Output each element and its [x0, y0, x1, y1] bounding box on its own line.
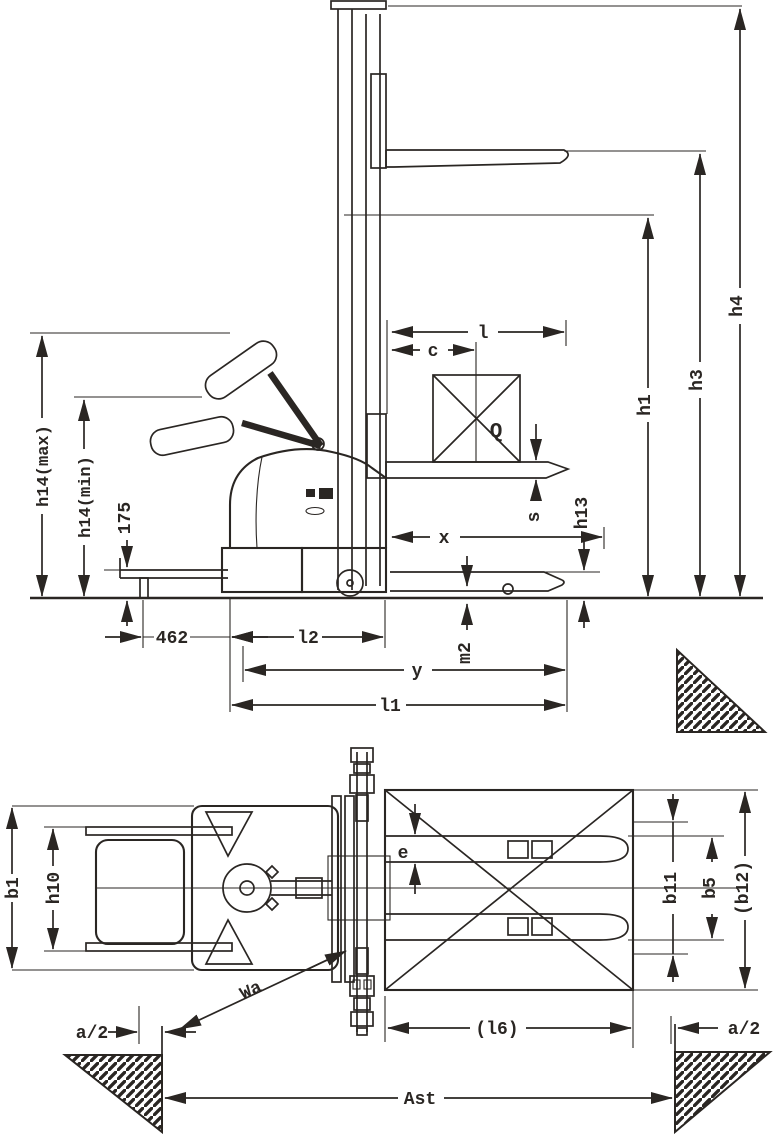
dim-label-ast: Ast	[404, 1090, 436, 1110]
side-view: Q	[30, 1, 765, 732]
fork-raised	[371, 74, 568, 168]
dim-label-h10: h10	[45, 872, 65, 904]
tiller-driving	[148, 415, 321, 458]
dim-label-b12: (b12)	[734, 861, 754, 915]
dim-label-l2: l2	[297, 629, 319, 649]
dim-label-c: c	[428, 342, 439, 362]
operator-platform	[120, 558, 228, 598]
dim-label-h3: h3	[688, 369, 708, 391]
fork-lowered	[390, 572, 564, 594]
dim-label-h4: h4	[728, 295, 748, 317]
dim-label-b11: b11	[662, 872, 682, 905]
dim-label-m2: m2	[456, 642, 476, 664]
truck-top	[86, 796, 390, 982]
dim-label-b5: b5	[701, 877, 721, 899]
mast	[331, 1, 386, 590]
pallet-outline	[385, 790, 633, 990]
drawing-canvas: Q	[0, 0, 773, 1136]
dim-label-l6: (l6)	[475, 1020, 518, 1040]
dimensional-drawing: Q	[0, 0, 773, 1136]
dim-label-b1: b1	[4, 877, 24, 899]
logo-oval	[306, 508, 324, 515]
tiller-up	[201, 336, 324, 450]
fork-mid-with-load	[367, 414, 568, 478]
dim-label-a2-left: a/2	[76, 1024, 108, 1044]
dim-label-x: x	[439, 529, 450, 549]
dim-label-h13: h13	[573, 497, 593, 529]
aisle-wall-right	[675, 1024, 770, 1132]
logo-mark	[306, 489, 315, 497]
load-label: Q	[490, 421, 503, 444]
dim-label-175: 175	[116, 502, 136, 534]
dim-label-y: y	[412, 662, 423, 682]
dimensions-side: h14(max) h14(min) 175 462 l2 y l1	[30, 9, 748, 717]
dim-label-s: s	[525, 512, 545, 523]
chassis	[222, 449, 386, 596]
dim-label-462: 462	[156, 629, 188, 649]
top-view: b1 h10 e b11 b5 (b12) (l6)	[4, 748, 770, 1132]
dim-label-l: l	[478, 324, 489, 344]
dim-label-l1: l1	[379, 697, 401, 717]
dim-label-e: e	[398, 844, 409, 864]
ramp-wedge	[677, 650, 765, 732]
logo-mark	[319, 488, 333, 499]
dim-label-h14min: h14(min)	[77, 456, 96, 538]
dim-label-h14max: h14(max)	[35, 425, 54, 507]
dim-label-h1: h1	[636, 394, 656, 416]
dim-label-a2-right: a/2	[728, 1020, 760, 1040]
